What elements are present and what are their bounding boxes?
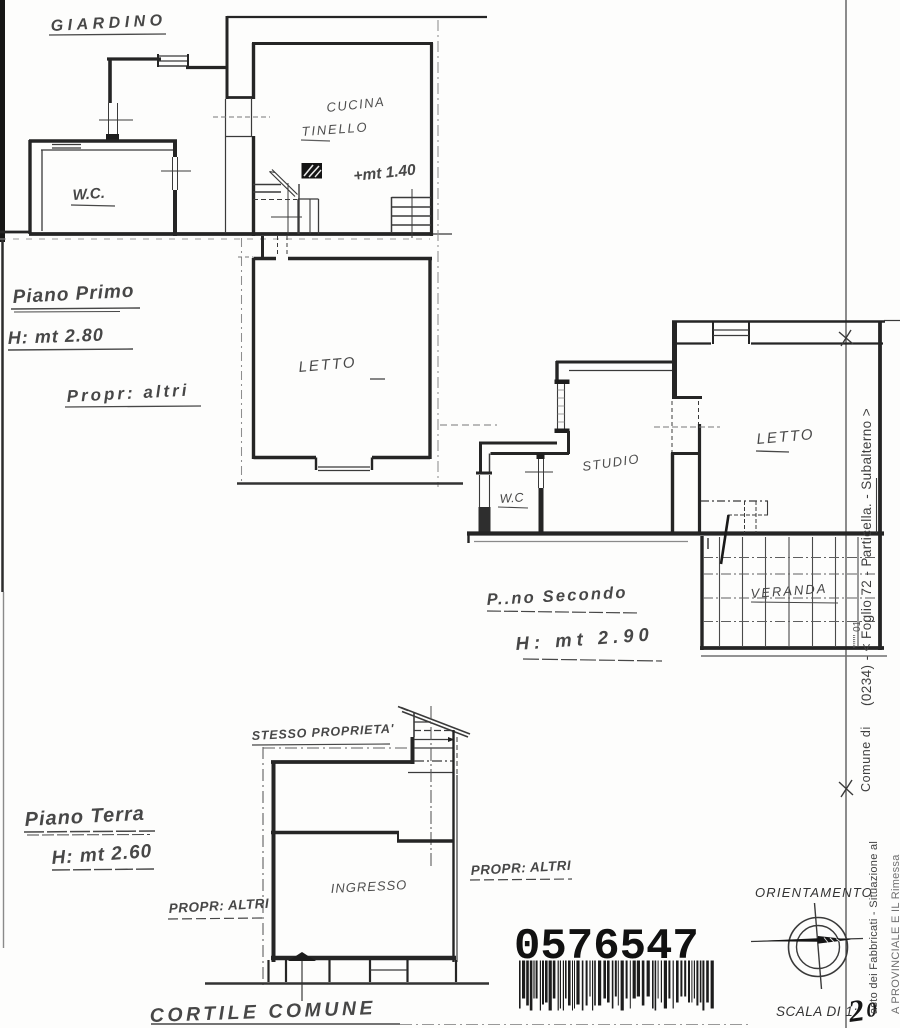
- svg-text:H: mt 2.60: H: mt 2.60: [51, 841, 153, 869]
- svg-text:INGRESSO: INGRESSO: [330, 877, 407, 896]
- svg-text:Piano Primo: Piano Primo: [12, 281, 135, 308]
- svg-text:TINELLO: TINELLO: [301, 119, 369, 139]
- svg-text:W.C: W.C: [499, 490, 525, 506]
- svg-text:STESSO PROPRIETA': STESSO PROPRIETA': [251, 722, 395, 743]
- svg-text:W.C.: W.C.: [72, 185, 105, 204]
- svg-text:CUCINA: CUCINA: [326, 94, 386, 115]
- svg-text:ORIENTAMENTO: ORIENTAMENTO: [755, 885, 873, 900]
- svg-text:(0234) - < Foglio 72 - Parti: (0234) - < Foglio 72 - Particella. - Sub…: [859, 408, 874, 706]
- svg-text:H: mt 2.80: H: mt 2.80: [7, 325, 104, 348]
- svg-text:LETTO: LETTO: [298, 354, 357, 376]
- svg-text:H: mt 2.90: H: mt 2.90: [515, 623, 655, 654]
- svg-text:2: 2: [845, 992, 866, 1028]
- svg-text:STUDIO: STUDIO: [581, 451, 641, 474]
- svg-text:''''''' 01: ''''''' 01: [852, 620, 863, 648]
- svg-text:+mt 1.40: +mt 1.40: [353, 162, 417, 185]
- svg-text:GIARDINO: GIARDINO: [50, 12, 167, 35]
- svg-text:Propr: altri: Propr: altri: [66, 381, 190, 406]
- svg-text:SCALA DI 1:: SCALA DI 1:: [776, 1004, 858, 1019]
- svg-text:0576547: 0576547: [514, 922, 699, 972]
- svg-text:asto dei Fabbricati - Situazio: asto dei Fabbricati - Situazione al: [868, 841, 880, 1014]
- svg-text:Piano Terra: Piano Terra: [24, 803, 145, 831]
- svg-text:P..no Secondo: P..no Secondo: [486, 584, 628, 609]
- svg-text:PROPR: ALTRI: PROPR: ALTRI: [470, 858, 571, 878]
- svg-text:PROPR: ALTRI: PROPR: ALTRI: [168, 896, 269, 916]
- svg-text:LETTO: LETTO: [756, 426, 815, 448]
- svg-text:Comune di: Comune di: [859, 726, 873, 792]
- svg-text:CORTILE COMUNE: CORTILE COMUNE: [149, 997, 376, 1027]
- svg-text:A PROVINCIALE E IL Rimessa: A PROVINCIALE E IL Rimessa: [890, 854, 900, 1014]
